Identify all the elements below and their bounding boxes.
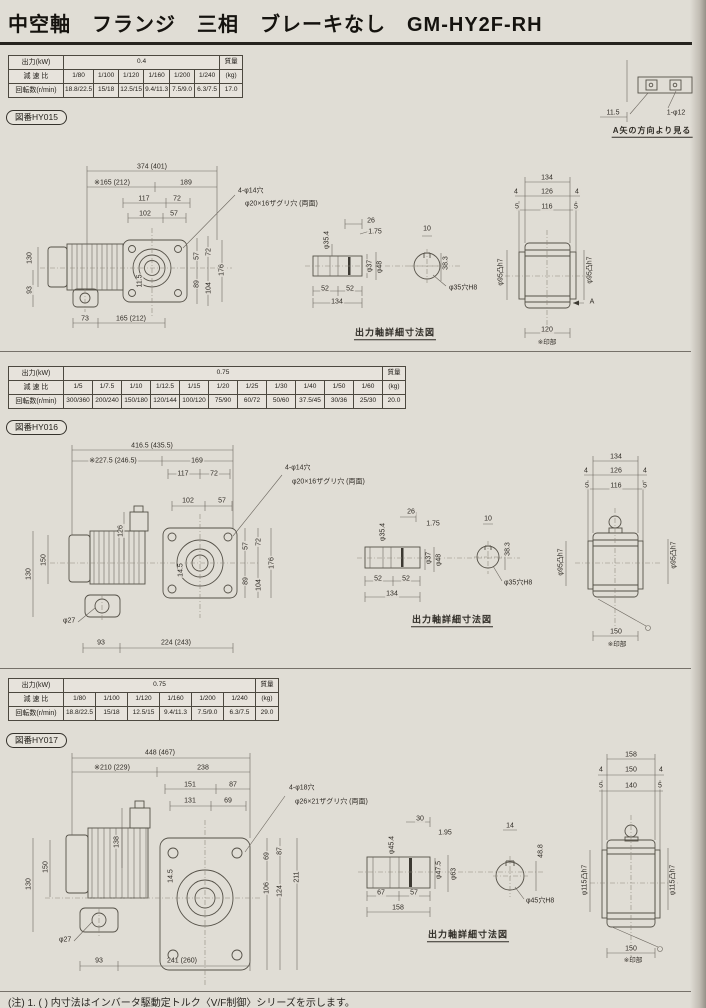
dimension-label: 1-φ12 [666,110,687,117]
dimension-label: 1.95 [437,830,453,837]
dimension-label: 224 (243) [160,640,192,647]
dimension-label: 11.5 [137,273,144,288]
dimension-label: 4 [583,468,589,475]
spec-table-hy016: 出力(kW)0.75質量減 速 比1/51/7.51/101/12.51/151… [8,366,406,409]
dimension-label: 5 [584,483,590,490]
dimension-label: 26 [406,509,416,516]
dimension-label: φ48 [377,260,384,274]
table-cell: (kg) [256,693,279,707]
dimension-label: φ35穴H8 [448,285,478,292]
dimension-label: φ48 [436,553,443,567]
dimension-label: φ63 [451,867,458,881]
dimension-label: 4-φ14穴 [237,188,265,195]
table-cell: 出力(kW) [9,56,64,70]
page-title: 中空軸 フランジ 三相 ブレーキなし GM-HY2F-RH [8,8,543,37]
table-cell: 1/240 [195,70,220,84]
dimension-label: 134 [540,175,554,182]
drawing-caption: 出力軸詳細寸法図 [427,930,509,942]
dimension-label: 93 [27,285,34,295]
table-cell: 300/360 [64,395,93,409]
table-cell: 150/180 [122,395,151,409]
spec-table-hy015: 出力(kW)0.4質量減 速 比1/801/1001/1201/1601/200… [8,55,243,98]
dimension-label: 120 [540,327,554,334]
table-cell: 1/5 [64,381,93,395]
section-divider-1 [0,351,691,352]
dimension-label: 134 [609,454,623,461]
dimension-label: 38.3 [443,255,450,271]
dimension-label: φ95凸h7 [671,540,678,569]
dimension-label: 416.5 (435.5) [130,443,174,450]
dimension-label: ※印部 [607,642,627,649]
dimension-label: 4 [574,189,580,196]
dimension-label: 5 [642,483,648,490]
hy015-side-view [505,177,595,338]
drawing-caption: A矢の方向より見る [612,127,693,138]
dimension-label: 10 [483,516,493,523]
table-cell: 1/7.5 [93,381,122,395]
table-cell: 質量 [220,56,243,70]
dimension-label: 130 [26,567,33,581]
dimension-label: 4-φ18穴 [288,785,316,792]
dimension-label: 26 [366,218,376,225]
table-cell: 15/18 [94,84,119,98]
dimension-label: 14.5 [168,868,175,884]
figure-badge-hy017: 図番HY017 [6,733,67,748]
table-cell: 9.4/11.3 [160,707,192,721]
dimension-label: 4 [513,189,519,196]
dimension-label: 165 (212) [115,316,147,323]
table-cell: 18.8/22.5 [64,84,94,98]
dimension-label: 52 [401,576,411,583]
dimension-label: 57 [243,541,250,551]
hy017-front-view [33,753,297,985]
dimension-label: 150 [624,767,638,774]
dimension-label: ※印部 [623,958,643,965]
dimension-label: ※印部 [537,340,557,347]
table-cell: 1/40 [296,381,325,395]
dimension-label: φ35.4 [380,522,387,542]
dimension-label: 38.3 [505,541,512,557]
dimension-label: φ37 [426,551,433,565]
table-cell: 12.5/15 [119,84,144,98]
figure-badge-hy016: 図番HY016 [6,420,67,435]
dimension-label: 150 [624,946,638,953]
dimension-label: 52 [320,286,330,293]
table-cell: 7.5/9.0 [192,707,224,721]
dimension-label: 124 [277,884,284,898]
table-cell: 100/120 [180,395,209,409]
dimension-label: 89 [194,279,201,289]
dimension-label: 238 [196,765,210,772]
dimension-label: 102 [138,211,152,218]
dimension-label: 126 [540,189,554,196]
section-divider-2 [0,668,691,669]
dimension-label: 104 [256,578,263,592]
table-cell: 質量 [383,367,406,381]
drawing-caption: 出力軸詳細寸法図 [411,615,493,627]
dimension-label: 151 [183,782,197,789]
table-cell: 1/160 [160,693,192,707]
table-cell: 1/120 [128,693,160,707]
dimension-label: 138 [114,835,121,849]
table-cell: (kg) [383,381,406,395]
table-cell: 37.5/45 [296,395,325,409]
dimension-label: 134 [385,591,399,598]
table-cell: 1/200 [170,70,195,84]
dimension-label: φ20×16ザグリ穴 (両面) [291,479,366,486]
dimension-label: 57 [194,251,201,261]
dimension-label: φ35穴H8 [503,580,533,587]
table-cell: 17.0 [220,84,243,98]
dimension-label: 11.5 [605,110,620,117]
title-rule [0,42,692,45]
dimension-label: 57 [169,211,179,218]
dimension-label: 102 [181,498,195,505]
drawing-caption: 出力軸詳細寸法図 [354,328,436,340]
dimension-label: φ95凸h7 [587,255,594,284]
dimension-label: 448 (467) [144,750,176,757]
table-cell: 1/100 [96,693,128,707]
dimension-label: φ45穴H8 [525,898,555,905]
table-cell: 6.3/7.5 [195,84,220,98]
table-cell: 1/15 [180,381,209,395]
table-cell: 1/60 [354,381,383,395]
dimension-label: 93 [94,958,104,965]
dimension-label: φ27 [62,618,76,625]
table-cell: 1/12.5 [151,381,180,395]
table-cell: 1/100 [94,70,119,84]
dimension-label: φ35.4 [324,230,331,250]
table-cell: 1/10 [122,381,151,395]
table-cell: 75/90 [209,395,238,409]
figure-badge-hy015: 図番HY015 [6,110,67,125]
footnote: (注) 1. ( ) 内寸法はインバータ駆動定トルク〈V/F制御〉シリーズを示し… [8,994,355,1008]
table-cell: 7.5/9.0 [170,84,195,98]
dimension-label: 5 [598,783,604,790]
table-cell: 出力(kW) [9,367,64,381]
dimension-label: 117 [137,196,150,203]
table-cell: 1/20 [209,381,238,395]
table-cell: 50/60 [267,395,296,409]
page-edge-shadow [690,0,706,1008]
dimension-label: 150 [41,553,48,567]
table-cell: 減 速 比 [9,693,64,707]
dimension-label: ※165 (212) [93,180,131,187]
dimension-label: 14.5 [178,562,185,578]
dimension-label: φ95凸h7 [558,547,565,576]
dimension-label: 116 [540,204,553,211]
dimension-label: 150 [43,860,50,874]
dimension-label: 189 [179,180,193,187]
dimension-label: φ37 [367,259,374,273]
dimension-label: 67 [376,890,386,897]
dimension-label: 57 [409,890,419,897]
dimension-label: 30 [415,816,425,823]
dimension-label: 57 [217,498,227,505]
table-cell: 9.4/11.3 [144,84,170,98]
dimension-label: 72 [206,247,213,257]
dimension-label: 52 [345,286,355,293]
dimension-label: 1.75 [425,521,441,528]
table-cell: 出力(kW) [9,679,64,693]
dimension-label: 126 [609,468,623,475]
table-cell: 0.75 [64,679,256,693]
dimension-label: φ115凸h7 [670,864,677,897]
dimension-label: 130 [26,877,33,891]
dimension-label: 93 [96,640,106,647]
table-cell: 回転数(r/min) [9,395,64,409]
table-cell: 1/50 [325,381,354,395]
table-cell: 回転数(r/min) [9,84,64,98]
table-cell: 1/120 [119,70,144,84]
table-cell: 1/240 [224,693,256,707]
table-cell: 200/240 [93,395,122,409]
dimension-label: 140 [624,783,638,790]
dimension-label: 10 [422,226,432,233]
table-cell: (kg) [220,70,243,84]
dimension-label: 4 [598,767,604,774]
dimension-label: 176 [219,263,226,277]
table-cell: 0.75 [64,367,383,381]
table-cell: 15/18 [96,707,128,721]
table-cell: 25/30 [354,395,383,409]
dimension-label: 1.75 [367,229,383,236]
dimension-label: 131 [183,798,197,805]
dimension-label: 52 [373,576,383,583]
dimension-label: 69 [223,798,233,805]
dimension-label: φ45.4 [389,835,396,855]
dimension-label: 241 (260) [166,958,198,965]
dimension-label: A [589,299,596,306]
table-cell: 回転数(r/min) [9,707,64,721]
dimension-label: φ20×16ザグリ穴 (両面) [244,201,319,208]
table-cell: 1/80 [64,70,94,84]
table-cell: 12.5/15 [128,707,160,721]
dimension-label: 69 [264,851,271,861]
dimension-label: 73 [80,316,90,323]
dimension-label: 4-φ14穴 [284,465,312,472]
dimension-label: 4 [658,767,664,774]
dimension-label: φ115凸h7 [582,864,589,897]
line-art [0,0,706,1008]
dimension-label: 5 [573,204,579,211]
dimension-label: 5 [657,783,663,790]
catalog-page: 中空軸 フランジ 三相 ブレーキなし GM-HY2F-RH 出力(kW)0.4質… [0,0,706,1008]
dimension-label: φ26×21ザグリ穴 (両面) [294,799,369,806]
dimension-label: 87 [228,782,238,789]
section-divider-3 [0,991,691,992]
table-cell: 60/72 [238,395,267,409]
table-cell: 1/80 [64,693,96,707]
table-cell: 120/144 [151,395,180,409]
dimension-label: 106 [264,881,271,895]
dimension-label: φ95凸h7 [498,257,505,286]
table-cell: 1/160 [144,70,170,84]
dimension-label: 104 [206,281,213,295]
table-cell: 29.0 [256,707,279,721]
dimension-label: 158 [624,752,638,759]
table-cell: 20.0 [383,395,406,409]
spec-table-hy017: 出力(kW)0.75質量減 速 比1/801/1001/1201/1601/20… [8,678,279,721]
table-cell: 1/30 [267,381,296,395]
dimension-label: 116 [609,483,622,490]
table-cell: 減 速 比 [9,70,64,84]
table-cell: 18.8/22.5 [64,707,96,721]
table-cell: 減 速 比 [9,381,64,395]
dimension-label: φ27 [58,937,72,944]
table-cell: 6.3/7.5 [224,707,256,721]
dimension-label: φ47.5 [436,860,443,880]
dimension-label: ※210 (229) [93,765,131,772]
dimension-label: 117 [176,471,189,478]
table-cell: 30/36 [325,395,354,409]
dimension-label: 134 [330,299,344,306]
dimension-label: ※227.5 (246.5) [88,458,138,465]
dimension-label: 374 (401) [136,164,168,171]
dimension-label: 126 [118,524,125,538]
table-cell: 1/25 [238,381,267,395]
dimension-label: 4 [642,468,648,475]
dimension-label: 176 [269,556,276,570]
table-cell: 1/200 [192,693,224,707]
dimension-label: 72 [256,537,263,547]
dimension-label: 150 [609,629,623,636]
dimension-label: 158 [391,905,405,912]
table-cell: 0.4 [64,56,220,70]
dimension-label: 169 [190,458,204,465]
table-cell: 質量 [256,679,279,693]
dimension-label: 87 [277,846,284,856]
dimension-label: 72 [209,471,219,478]
dimension-label: 5 [514,204,520,211]
dimension-label: 130 [27,251,34,265]
dimension-label: 89 [243,576,250,586]
dimension-label: 211 [294,870,301,883]
dimension-label: 72 [172,196,182,203]
dimension-label: 14 [505,823,515,830]
dimension-label: 48.8 [538,843,545,859]
